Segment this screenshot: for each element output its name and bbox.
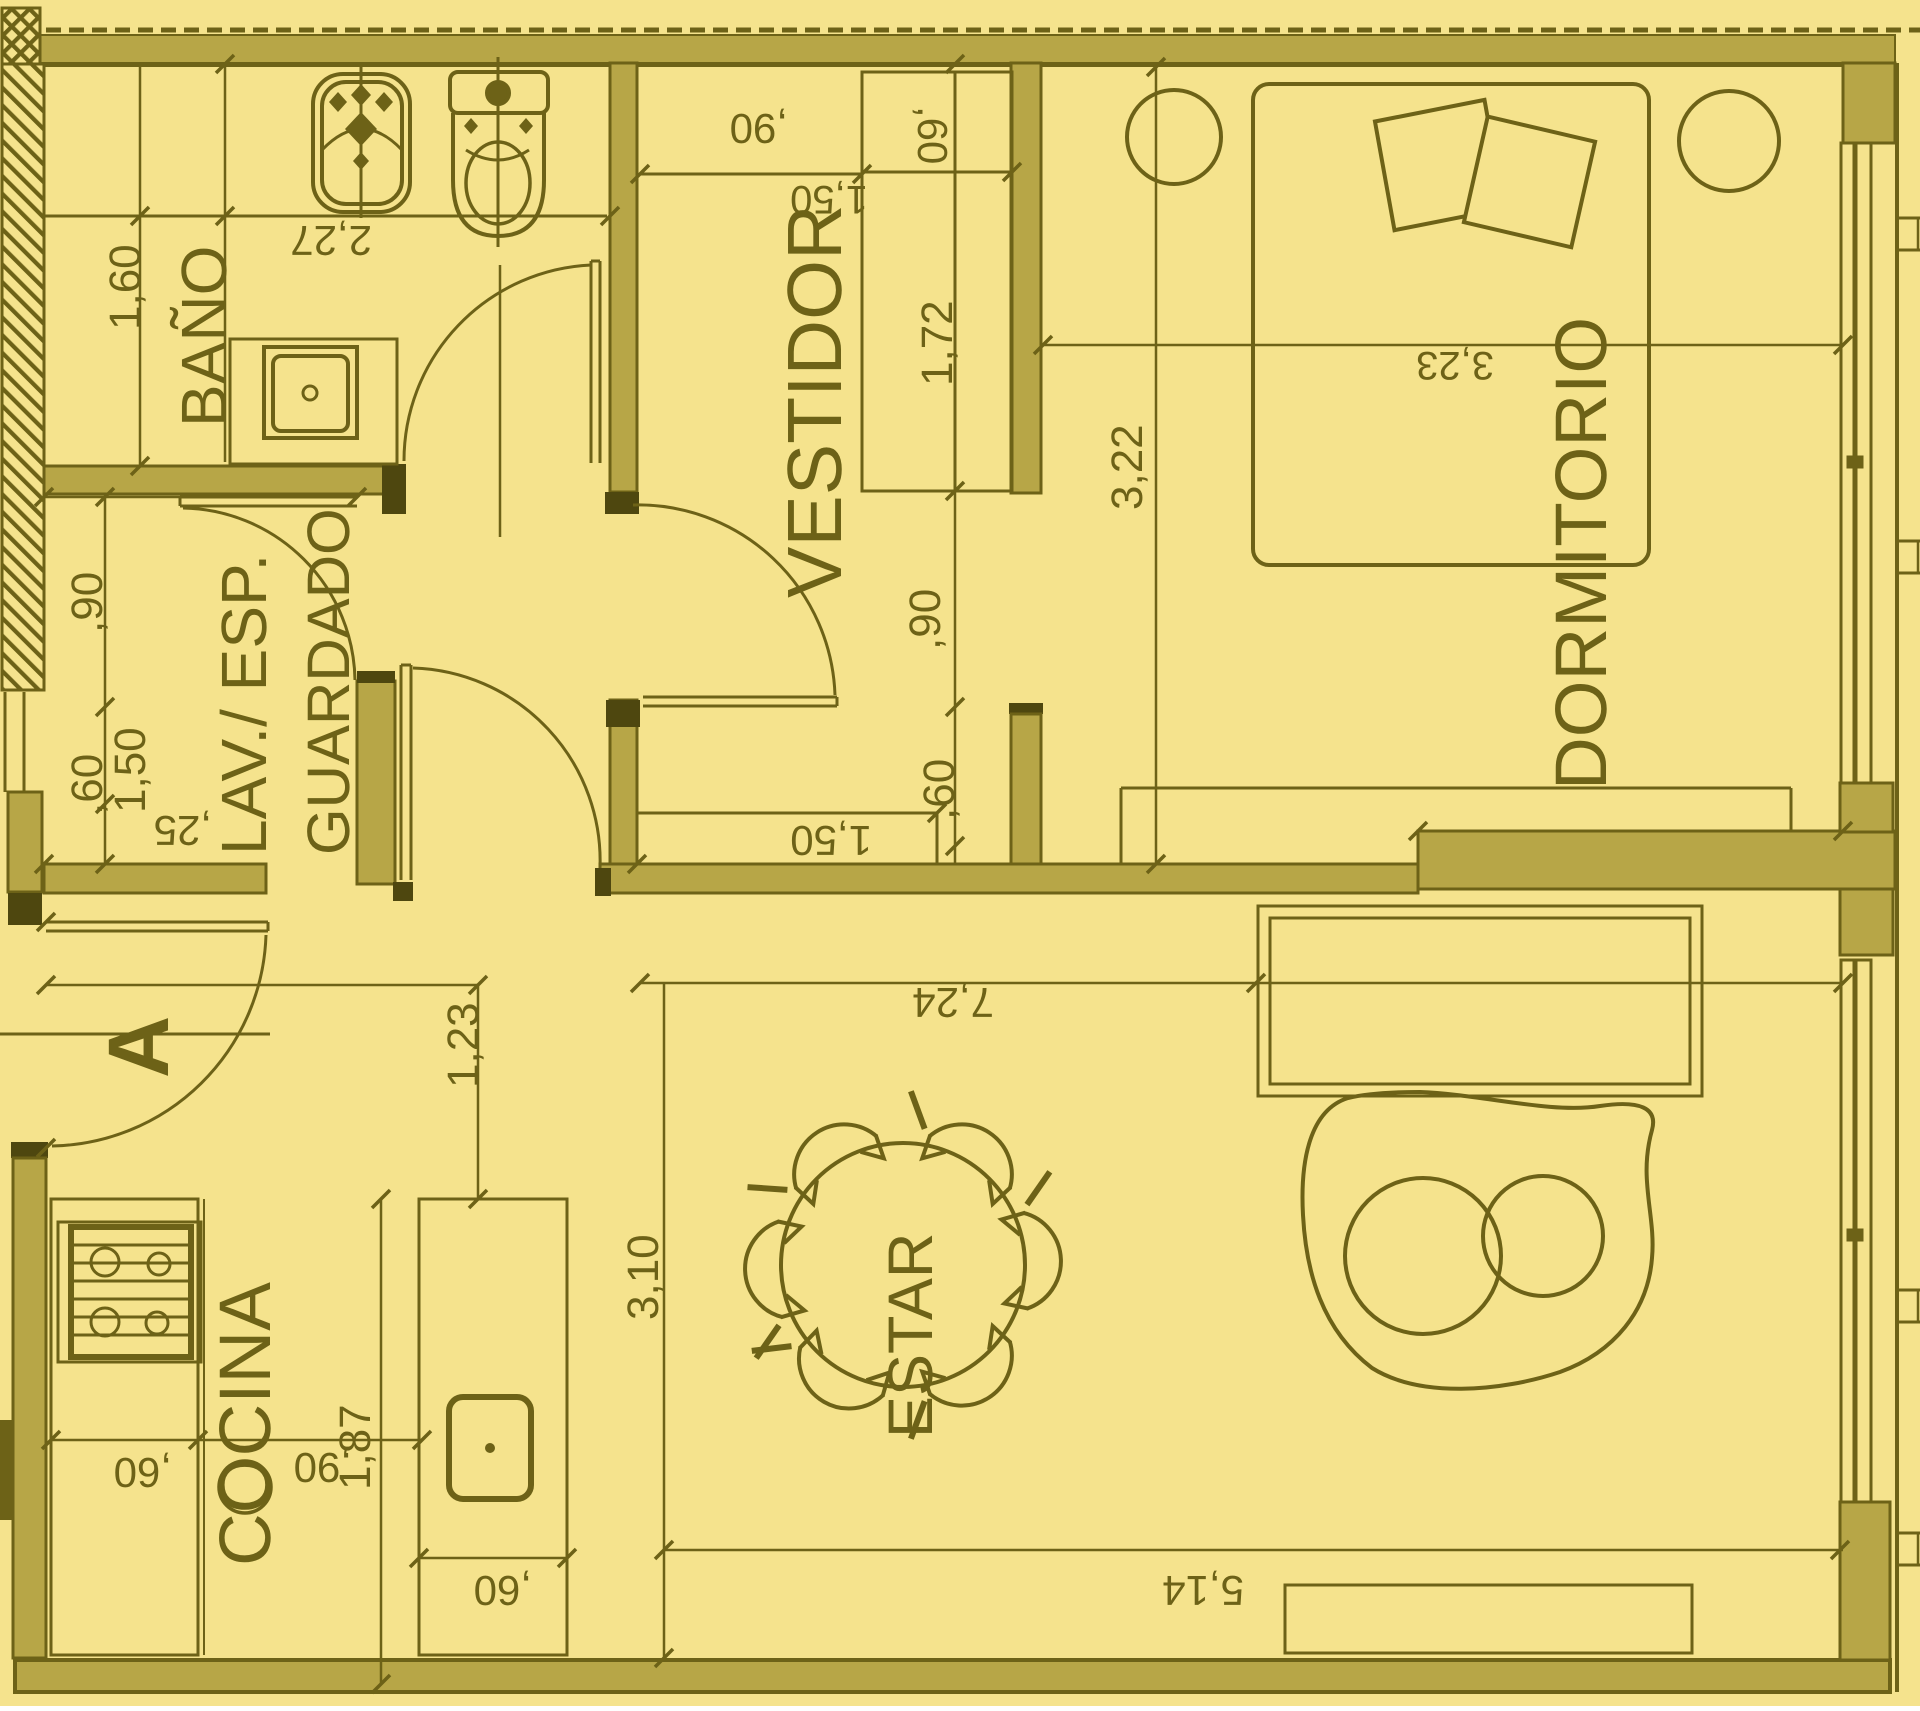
svg-text:ESTAR: ESTAR <box>876 1233 946 1438</box>
svg-text:,25: ,25 <box>154 807 212 854</box>
svg-text:VESTIDOR: VESTIDOR <box>772 204 858 598</box>
svg-text:1,50: 1,50 <box>790 177 868 221</box>
svg-text:A: A <box>91 1016 187 1078</box>
svg-text:BAÑO: BAÑO <box>168 246 240 427</box>
svg-text:3,22: 3,22 <box>1103 424 1152 510</box>
svg-text:1,23: 1,23 <box>439 1002 488 1088</box>
svg-text:5,14: 5,14 <box>1162 1567 1244 1614</box>
svg-text:DORMITORIO: DORMITORIO <box>1541 317 1622 790</box>
svg-text:,90: ,90 <box>901 589 950 650</box>
svg-text:2,27: 2,27 <box>290 217 372 264</box>
svg-text:,90: ,90 <box>63 572 112 633</box>
svg-text:COCINA: COCINA <box>205 1282 286 1566</box>
svg-text:3,23: 3,23 <box>1416 343 1494 387</box>
svg-text:,90: ,90 <box>730 105 788 152</box>
svg-text:,60: ,60 <box>474 1567 532 1614</box>
svg-text:1,72: 1,72 <box>913 300 962 386</box>
svg-text:,60: ,60 <box>909 106 956 164</box>
svg-text:1,87: 1,87 <box>331 1404 380 1490</box>
svg-text:LAV./ ESP.: LAV./ ESP. <box>208 554 280 855</box>
svg-text:1,50: 1,50 <box>790 817 872 864</box>
svg-text:1,60: 1,60 <box>101 244 150 330</box>
svg-text:3,10: 3,10 <box>619 1234 668 1320</box>
svg-text:7,24: 7,24 <box>912 979 994 1026</box>
svg-text:GUARDADO: GUARDADO <box>295 508 362 855</box>
svg-text:,60: ,60 <box>114 1449 172 1496</box>
svg-text:1,50: 1,50 <box>106 727 155 813</box>
